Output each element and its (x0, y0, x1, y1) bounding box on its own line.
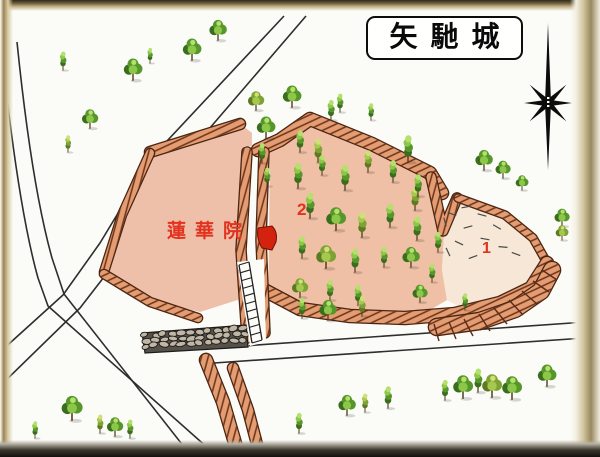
enclosure-2-label: 2 (297, 201, 306, 218)
tree-icon (183, 39, 202, 63)
tree-icon (127, 420, 136, 440)
tree-icon (296, 413, 306, 435)
enclosure-1-label: 1 (482, 241, 491, 257)
tree-icon (442, 380, 452, 402)
tree-icon (496, 161, 511, 181)
tree-icon (338, 395, 355, 418)
tree-icon (337, 94, 346, 114)
tree-icon (248, 91, 264, 112)
tree-icon (538, 365, 557, 389)
tree-icon (209, 20, 226, 43)
tree-icon (97, 415, 106, 435)
temple-label: 蓮華院 (167, 222, 251, 241)
tree-icon (328, 100, 338, 122)
tree-icon (107, 417, 123, 438)
scanned-map-page: 矢馳城 蓮華院 2 1 (0, 0, 600, 457)
tree-icon (62, 396, 83, 423)
tree-icon (32, 421, 40, 439)
tree-icon (147, 48, 154, 65)
castle-map-drawing (0, 0, 600, 457)
tree-icon (516, 175, 529, 192)
tree-icon (384, 386, 395, 410)
tree-icon (362, 394, 371, 414)
tree-icon (474, 369, 486, 395)
stone-wall (140, 324, 249, 353)
tree-icon (368, 103, 376, 121)
tree-icon (482, 374, 502, 400)
compass-rose-icon (524, 23, 572, 170)
tree-icon (60, 52, 69, 72)
tree-icon (453, 375, 473, 401)
tree-icon (124, 59, 143, 83)
tree-icon (283, 86, 302, 110)
tree-icon (502, 376, 522, 402)
tree-icon (82, 109, 98, 130)
tree-icon (475, 150, 492, 173)
tree-icon (555, 209, 570, 229)
map-title-box: 矢馳城 (366, 16, 523, 60)
map-title: 矢馳城 (376, 24, 512, 52)
tree-icon (65, 135, 73, 153)
